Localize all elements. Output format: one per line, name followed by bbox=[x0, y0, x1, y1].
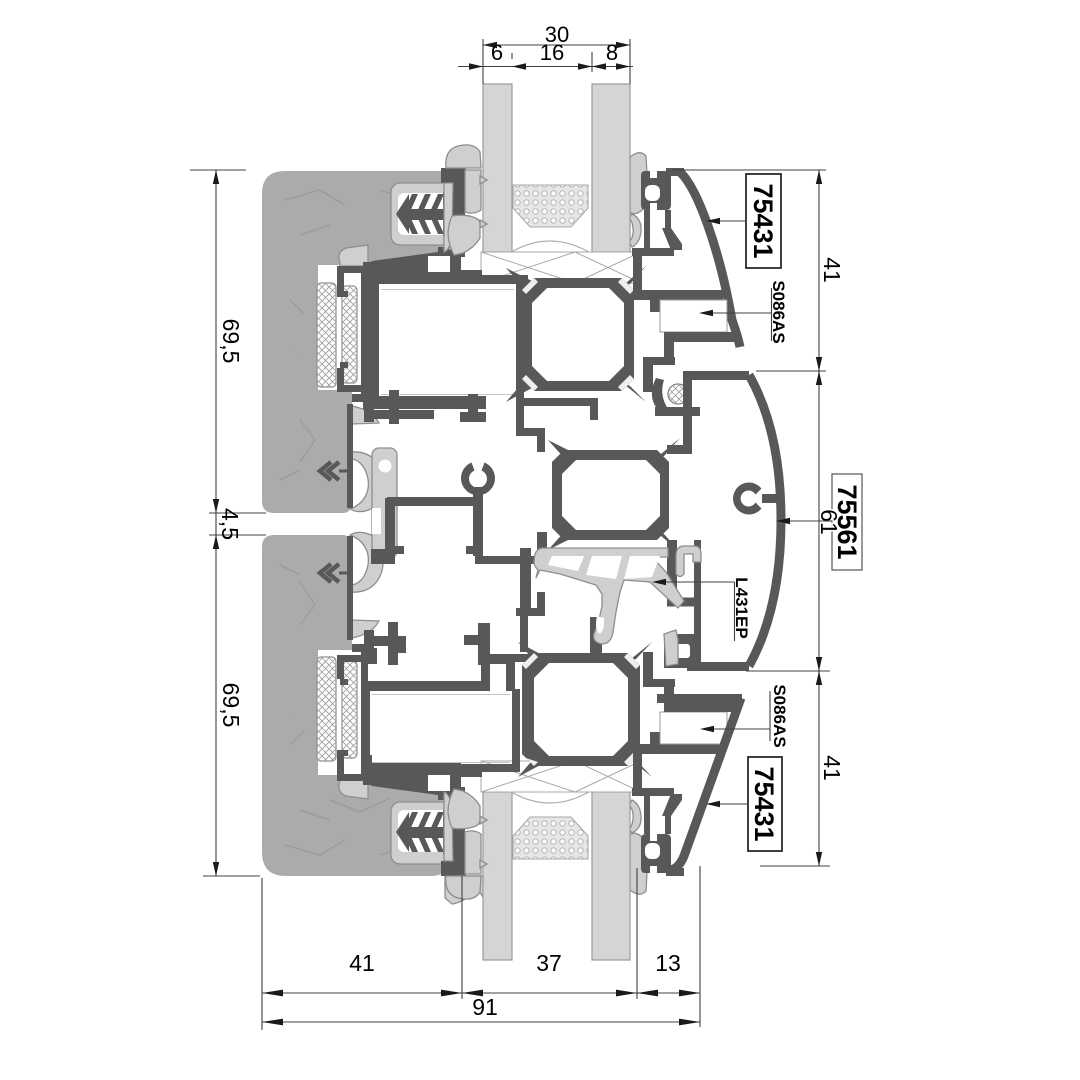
svg-text:6: 6 bbox=[491, 40, 503, 65]
svg-text:69,5: 69,5 bbox=[218, 319, 244, 364]
svg-text:75431: 75431 bbox=[748, 183, 778, 258]
svg-text:37: 37 bbox=[536, 950, 562, 976]
svg-text:41: 41 bbox=[819, 257, 845, 283]
svg-text:91: 91 bbox=[472, 994, 498, 1020]
svg-text:13: 13 bbox=[655, 950, 681, 976]
svg-text:S086AS: S086AS bbox=[770, 684, 789, 747]
svg-text:69,5: 69,5 bbox=[218, 683, 244, 728]
svg-text:61: 61 bbox=[816, 509, 842, 535]
svg-text:L431EP: L431EP bbox=[732, 577, 751, 638]
svg-text:16: 16 bbox=[540, 40, 564, 65]
svg-text:8: 8 bbox=[606, 40, 618, 65]
svg-text:41: 41 bbox=[819, 755, 845, 781]
svg-text:4,5: 4,5 bbox=[217, 508, 243, 540]
svg-text:S086AS: S086AS bbox=[769, 280, 788, 343]
svg-text:41: 41 bbox=[349, 950, 375, 976]
svg-text:75431: 75431 bbox=[749, 766, 779, 841]
